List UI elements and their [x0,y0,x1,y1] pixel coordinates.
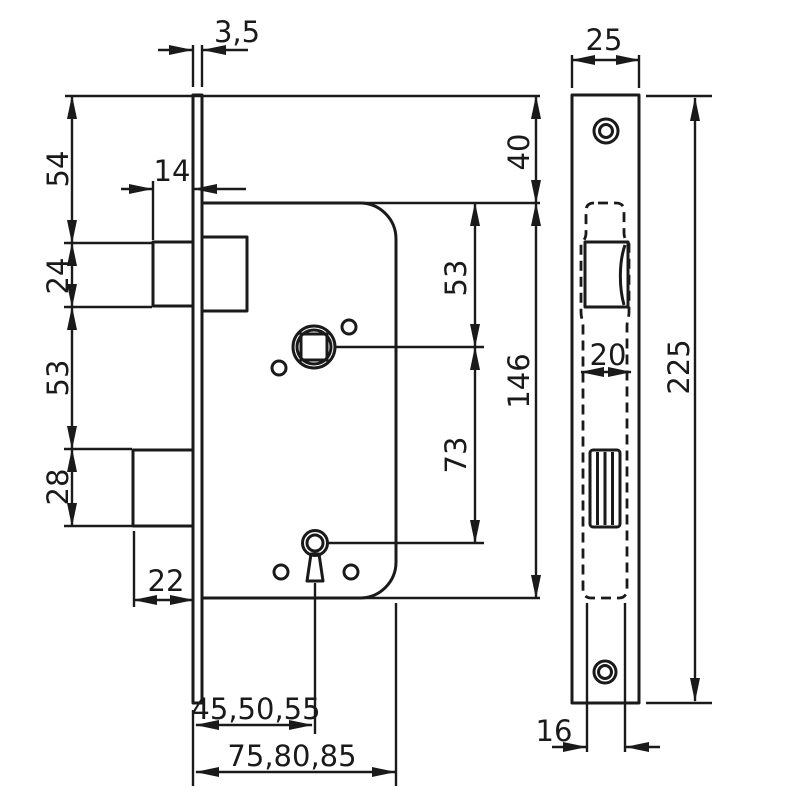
side-view [64,45,540,786]
dim-label-plate-thickness: 3,5 [214,15,260,49]
fixing-post-hole [272,361,286,375]
fixing-post-hole [342,320,356,334]
fixing-post-hole [274,565,288,579]
dim-label-deadbolt-protrusion: 22 [148,564,185,598]
latch-bolt-front [585,242,628,307]
dim-label-latch-protrusion: 14 [154,154,191,188]
keyhole [274,531,358,582]
dim-label-latch-height: 24 [41,258,75,295]
dim-label-case-width: 16 [536,714,573,748]
dimension-labels: 3,5 54 14 24 53 28 22 45,50,55 75,80,85 … [41,15,696,773]
mortise-lock-drawing: 3,5 54 14 24 53 28 22 45,50,55 75,80,85 … [0,0,800,800]
dim-label-case-top-to-hub: 53 [439,260,473,297]
latch-bevel-line [620,245,625,305]
latch-bolt-body [202,237,247,311]
dim-label-plate-top-offset: 40 [502,134,536,171]
dim-label-case-depth: 75,80,85 [227,739,356,773]
dim-label-hub-to-keyhole: 73 [439,437,473,474]
fixing-post-hole [344,565,358,579]
screw-hole-top [594,119,618,143]
dim-label-backset: 45,50,55 [191,692,320,726]
faceplate-front [572,95,639,703]
dim-label-top-to-latch: 54 [41,151,75,188]
latch-bolt-head [153,242,193,306]
drawing-sheet: 3,5 54 14 24 53 28 22 45,50,55 75,80,85 … [0,0,800,800]
faceplate-edge [193,95,202,703]
dim-label-pocket-width: 20 [590,338,627,372]
dim-label-plate-height: 225 [662,339,696,394]
front-view [572,55,712,752]
lock-case-outline [202,203,396,598]
dim-label-case-height: 146 [502,353,536,408]
screw-hole-bottom [594,661,616,683]
deadbolt-head [133,450,193,526]
dim-label-plate-width: 25 [586,23,623,57]
deadbolt-front [590,450,620,527]
dim-label-latch-to-deadbolt: 53 [41,360,75,397]
dim-label-deadbolt-height: 28 [41,469,75,506]
